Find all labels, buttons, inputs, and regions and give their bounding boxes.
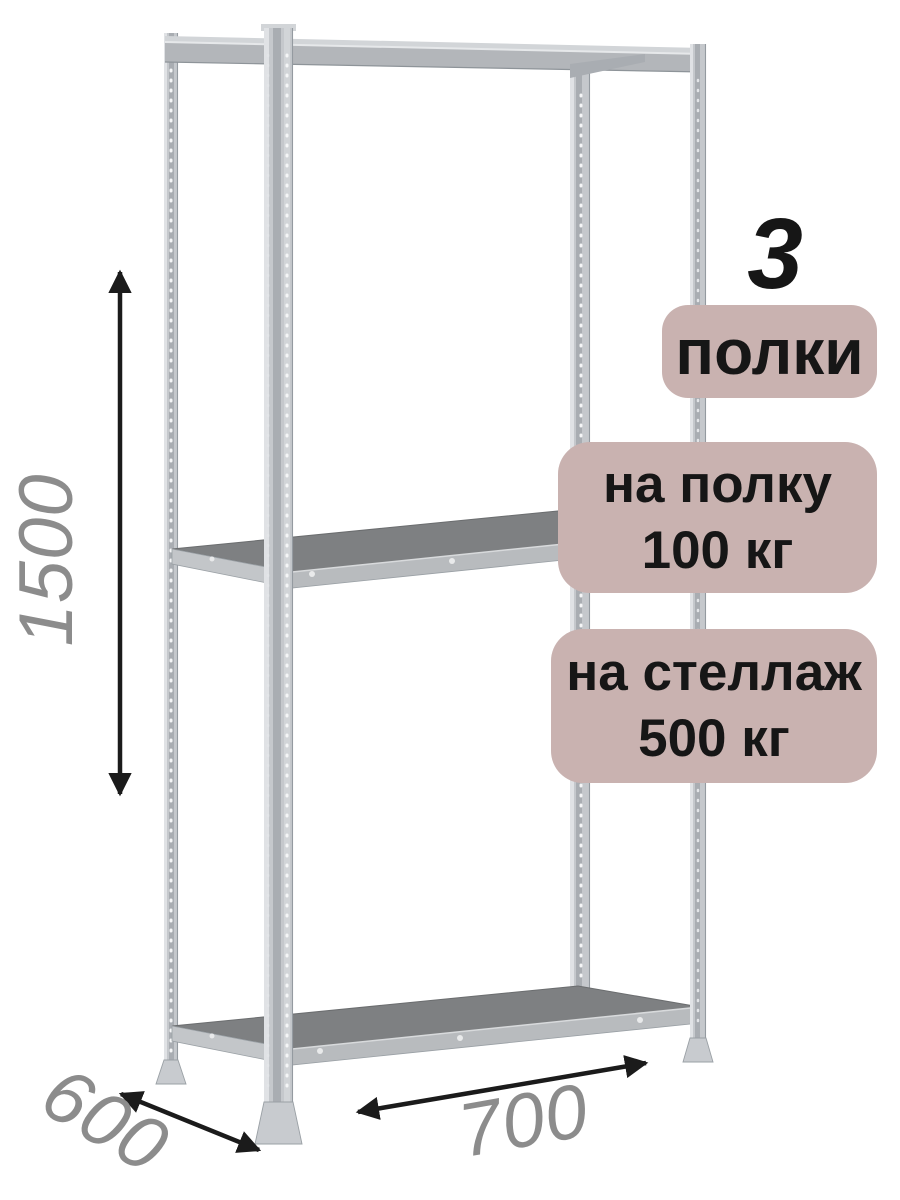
shelf-count-label: полки (675, 315, 863, 389)
per-rack-load-badge: на стеллаж 500 кг (551, 629, 877, 783)
shelf-count-badge: полки (662, 305, 877, 398)
rack-illustration: 1500 600 700 (0, 0, 900, 1200)
per-rack-load-value: 500 кг (638, 706, 790, 772)
depth-dimension-label: 600 (28, 1050, 183, 1190)
per-rack-load-label: на стеллаж (566, 640, 862, 706)
per-shelf-load-badge: на полку 100 кг (558, 442, 877, 593)
per-shelf-load-label: на полку (603, 452, 832, 518)
bottom-shelf (172, 986, 700, 1065)
top-beam (165, 36, 704, 78)
width-dimension-label: 700 (452, 1068, 595, 1174)
height-dimension-label: 1500 (4, 473, 89, 646)
per-shelf-load-value: 100 кг (642, 518, 794, 584)
shelf-count-number: 3 (700, 204, 850, 304)
product-card: 1500 600 700 3 полки на полку 100 кг на … (0, 0, 900, 1200)
